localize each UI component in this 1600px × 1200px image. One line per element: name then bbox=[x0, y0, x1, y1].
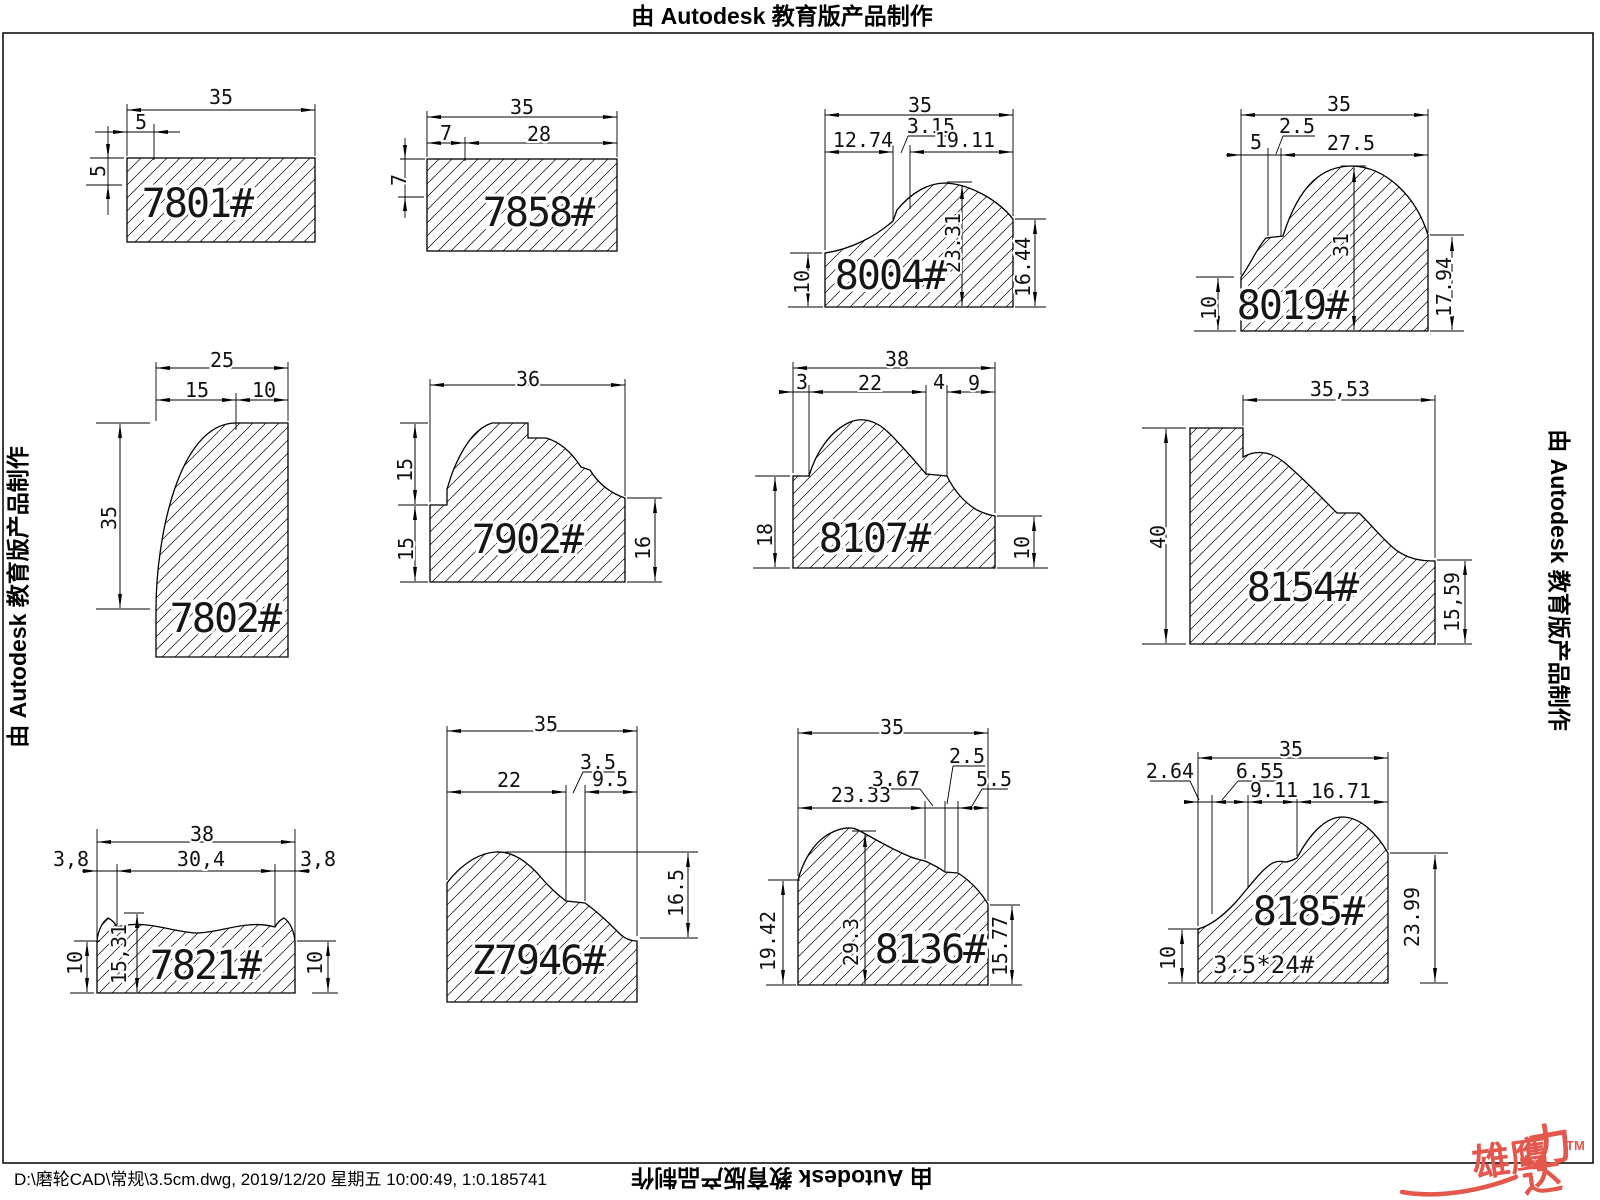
profile-7858: 35 7 28 7 7858# bbox=[387, 95, 617, 251]
dim-text: 35 bbox=[880, 715, 904, 739]
dim-text: 35,53 bbox=[1310, 377, 1370, 401]
dim-text: 35 bbox=[1279, 737, 1303, 761]
dim-text: 22 bbox=[858, 371, 882, 395]
dim-text: 18 bbox=[753, 523, 777, 547]
dim-text: 16.44 bbox=[1011, 237, 1035, 297]
dim-text: 25 bbox=[210, 348, 234, 372]
dim-text: 38 bbox=[190, 822, 214, 846]
dim-text: 19.42 bbox=[756, 911, 780, 971]
watermark-left: 由 Autodesk 教育版产品制作 bbox=[5, 446, 31, 748]
drawing-canvas: 由 Autodesk 教育版产品制作 由 Autodesk 教育版产品制作 由 … bbox=[0, 0, 1600, 1200]
dim-text: 30,4 bbox=[177, 847, 225, 871]
footer-file-path: D:\磨轮CAD\常规\3.5cm.dwg, 2019/12/20 星期五 10… bbox=[14, 1170, 547, 1189]
profile-8004: 35 3.15 12.74 19.11 23.31 16.44 10 8004# bbox=[788, 93, 1046, 307]
dim-text: 15,31 bbox=[107, 924, 131, 984]
dim-text: 29.3 bbox=[839, 918, 863, 966]
part-label: Z7946# bbox=[472, 938, 606, 984]
profile-8154-shape bbox=[1190, 428, 1435, 644]
dim-text: 31 bbox=[1329, 233, 1353, 257]
profile-8185: 35 2.64 6.55 9.11 16.71 23.99 10 8185# 3… bbox=[1146, 737, 1448, 983]
dim-text: 15 bbox=[393, 458, 417, 482]
dim-text: 16 bbox=[631, 536, 655, 560]
dim-text: 10 bbox=[252, 378, 276, 402]
dim-text: 10 bbox=[1156, 946, 1180, 970]
cad-sheet: 由 Autodesk 教育版产品制作 由 Autodesk 教育版产品制作 由 … bbox=[0, 0, 1600, 1200]
dim-text: 12.74 bbox=[833, 128, 893, 152]
dim-text: 10 bbox=[790, 270, 814, 294]
dim-text: 35 bbox=[209, 85, 233, 109]
dim-text: 3,8 bbox=[300, 847, 336, 871]
profile-z7946: 35 22 3.5 9.5 16.5 Z7946# bbox=[447, 712, 698, 1002]
part-label: 7821# bbox=[150, 943, 262, 989]
dim-text: 7 bbox=[387, 174, 411, 186]
watermark-top: 由 Autodesk 教育版产品制作 bbox=[631, 3, 933, 29]
part-label: 8019# bbox=[1237, 283, 1349, 329]
dim-text: 16.5 bbox=[664, 869, 688, 917]
dim-text: 3,8 bbox=[53, 847, 89, 871]
dim-text: 5 bbox=[1250, 130, 1262, 154]
profile-8107: 38 3 22 4 9 18 10 8107# bbox=[753, 347, 1048, 568]
part-label: 8154# bbox=[1247, 565, 1359, 611]
dim-text: 19.11 bbox=[935, 128, 995, 152]
profile-8154: 35,53 40 15,59 8154# bbox=[1142, 377, 1472, 644]
profile-7801: 35 5 5 7801# bbox=[86, 85, 315, 242]
dim-text: 10 bbox=[1010, 536, 1034, 560]
dim-text: 3.67 bbox=[872, 767, 920, 791]
dim-text: 5 bbox=[86, 165, 110, 177]
dim-text: 2.64 bbox=[1146, 759, 1194, 783]
dim-text: 9.5 bbox=[592, 767, 628, 791]
watermark-bottom: 由 Autodesk 教育版产品制作 bbox=[631, 1165, 933, 1191]
dim-text: 15 bbox=[185, 378, 209, 402]
dim-text: 17.94 bbox=[1432, 257, 1456, 317]
logo-tm: TM bbox=[1566, 1138, 1585, 1153]
dim-text: 23.99 bbox=[1400, 887, 1424, 947]
part-label: 8004# bbox=[835, 253, 947, 299]
dim-text: 40 bbox=[1146, 525, 1170, 549]
dim-text: 27.5 bbox=[1327, 131, 1375, 155]
dim-text: 15,59 bbox=[1440, 572, 1464, 632]
profile-7821: 38 3,8 30,4 3,8 15,31 10 10 7821# bbox=[53, 822, 338, 993]
part-label: 7858# bbox=[483, 190, 595, 236]
part-label: 7802# bbox=[170, 596, 282, 642]
dim-text: 22 bbox=[497, 768, 521, 792]
dim-text: 7 bbox=[440, 121, 452, 145]
profile-7902: 36 15 15 16 7902# bbox=[393, 367, 662, 582]
dim-text: 35 bbox=[510, 95, 534, 119]
dim-text: 5.5 bbox=[976, 767, 1012, 791]
part-label: 8185# bbox=[1253, 889, 1365, 935]
dim-text: 35 bbox=[534, 712, 558, 736]
dim-text: 5 bbox=[135, 110, 147, 134]
dim-text: 16.71 bbox=[1311, 779, 1371, 803]
dim-text: 10 bbox=[1197, 296, 1221, 320]
part-label: 8136# bbox=[875, 927, 987, 973]
company-logo: 雄鹰 力 TM 达 bbox=[1402, 1118, 1585, 1200]
part-label: 7902# bbox=[472, 517, 584, 563]
dim-text: 9 bbox=[968, 371, 980, 395]
dim-text: 35 bbox=[1327, 92, 1351, 116]
dim-text: 9.11 bbox=[1250, 778, 1298, 802]
dim-text: 10 bbox=[303, 951, 327, 975]
part-label: 8107# bbox=[819, 516, 931, 562]
watermark-right: 由 Autodesk 教育版产品制作 bbox=[1546, 429, 1572, 731]
dim-text: 15 bbox=[394, 537, 418, 561]
dim-text: 28 bbox=[527, 122, 551, 146]
profile-7802: 25 15 10 35 7802# bbox=[96, 348, 288, 657]
dim-text: 3 bbox=[796, 370, 808, 394]
dim-text: 2.5 bbox=[949, 744, 985, 768]
profile-8019: 35 2.5 5 27.5 31 17.94 10 8019# bbox=[1194, 92, 1464, 331]
part-label: 7801# bbox=[142, 181, 254, 227]
dim-text: 38 bbox=[885, 347, 909, 371]
logo-text-da: 达 bbox=[1519, 1153, 1565, 1200]
dim-text: 2.5 bbox=[1279, 114, 1315, 138]
dim-text: 15.77 bbox=[988, 916, 1012, 976]
part-sub-label: 3.5*24# bbox=[1213, 951, 1315, 979]
dim-text: 4 bbox=[933, 370, 945, 394]
dim-text: 35 bbox=[97, 506, 121, 530]
profile-8136: 35 23.33 3.67 2.5 5.5 29.3 19.42 15.77 8… bbox=[756, 715, 1022, 985]
dim-text: 36 bbox=[516, 367, 540, 391]
dim-text: 10 bbox=[63, 951, 87, 975]
